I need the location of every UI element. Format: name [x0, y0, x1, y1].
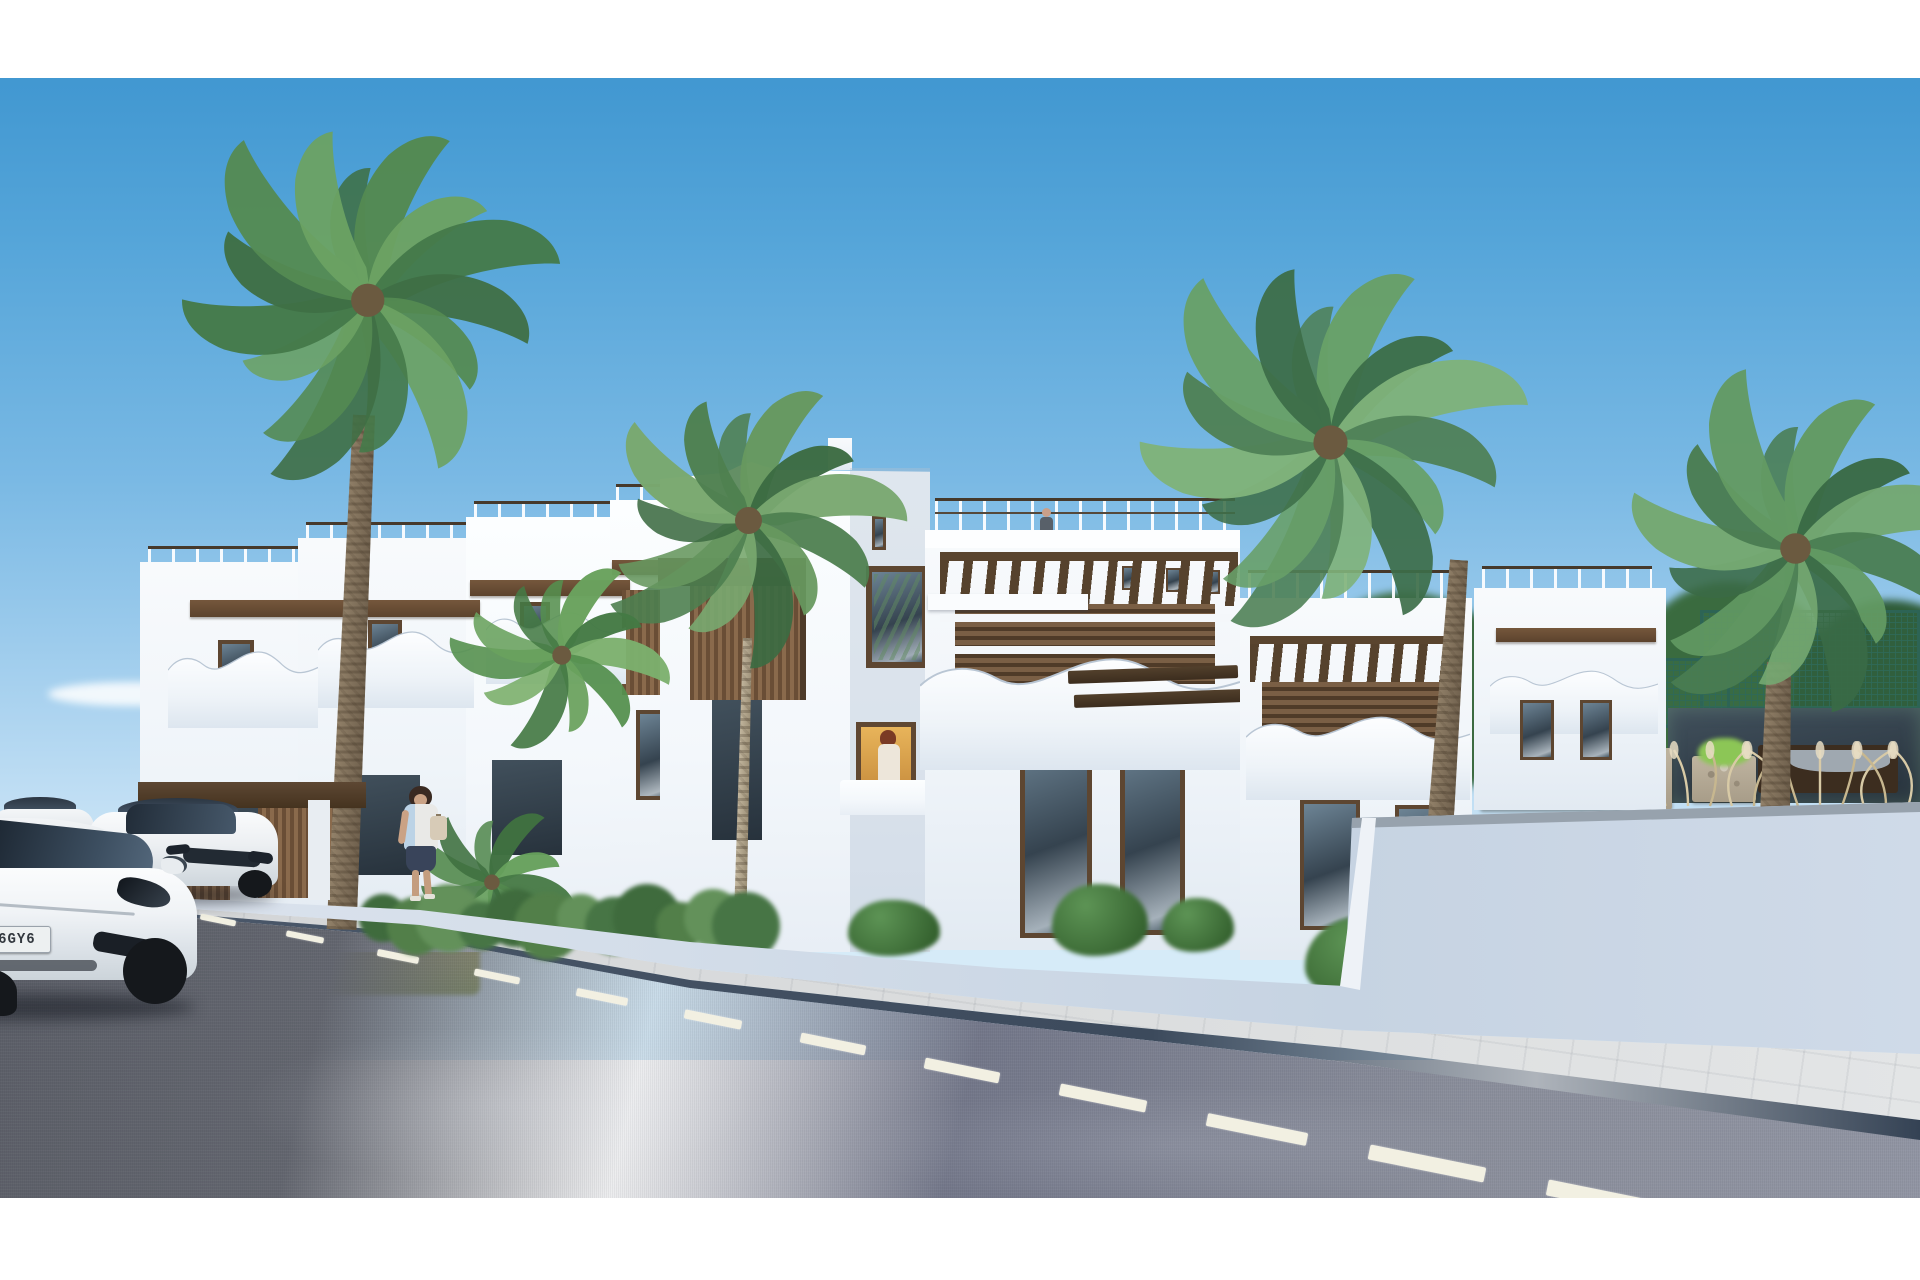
pedestrian-shoe: [410, 896, 421, 901]
palm-crown-center: [351, 283, 384, 316]
terrace-parapet: [840, 780, 934, 815]
car-wheel: [238, 870, 272, 898]
pampas-stem: [1728, 750, 1746, 806]
palm-tree-right-inner: [1112, 243, 1549, 642]
pampas-stem: [1842, 750, 1856, 806]
pampas-plume: [1744, 741, 1753, 759]
palm-crown-center: [1780, 533, 1811, 564]
car-bumper-slit: [0, 960, 97, 971]
pampas-stem: [1674, 750, 1688, 806]
palm-tree-left-large: [155, 106, 581, 495]
balcony-pergola: [1250, 644, 1462, 682]
pedestrian-handbag: [430, 816, 447, 840]
pedestrian: [392, 786, 450, 904]
wave-parapet: [168, 636, 318, 728]
palm-crown-center: [484, 874, 499, 889]
license-plate: B 6GY6: [0, 926, 51, 953]
car-mirror: [161, 856, 187, 874]
gate-pier: [308, 800, 330, 900]
pedestrian-skirt: [406, 846, 436, 872]
street-scene: B 6GY6: [0, 78, 1920, 1198]
window: [1520, 700, 1554, 760]
pampas-stem: [1894, 750, 1912, 806]
bush: [1162, 898, 1234, 952]
road-sheen: [220, 1020, 780, 1190]
palm-crown-center: [553, 646, 572, 665]
road-sheen: [820, 1080, 1520, 1198]
palm-crown-center: [735, 507, 762, 534]
bush: [848, 900, 940, 956]
pedestrian-leg: [412, 870, 419, 898]
pampas-plume: [1854, 741, 1863, 759]
pampas-plume: [1816, 741, 1825, 759]
person-head: [1042, 508, 1051, 517]
entry-door-glass: [712, 700, 762, 840]
wood-fascia: [190, 600, 480, 617]
plate-number: B 6GY6: [0, 931, 50, 948]
bush: [1052, 884, 1148, 956]
palm-tree-right-outer: [1600, 370, 1920, 727]
pampas-plume: [1706, 741, 1715, 759]
pampas-plume: [1890, 741, 1899, 759]
palm-crown-center: [1313, 425, 1347, 459]
white-shelf: [928, 594, 1088, 610]
car-wheel: [123, 938, 187, 1004]
pedestrian-leg: [423, 870, 432, 897]
palm-tree-behind-hedge: [441, 545, 683, 766]
architectural-render-image: B 6GY6: [0, 0, 1920, 1280]
foreground-car: B 6GY6: [0, 818, 197, 1020]
render-viewport: B 6GY6: [0, 78, 1920, 1198]
pedestrian-shoe: [424, 894, 435, 899]
pampas-plume: [1670, 741, 1679, 759]
